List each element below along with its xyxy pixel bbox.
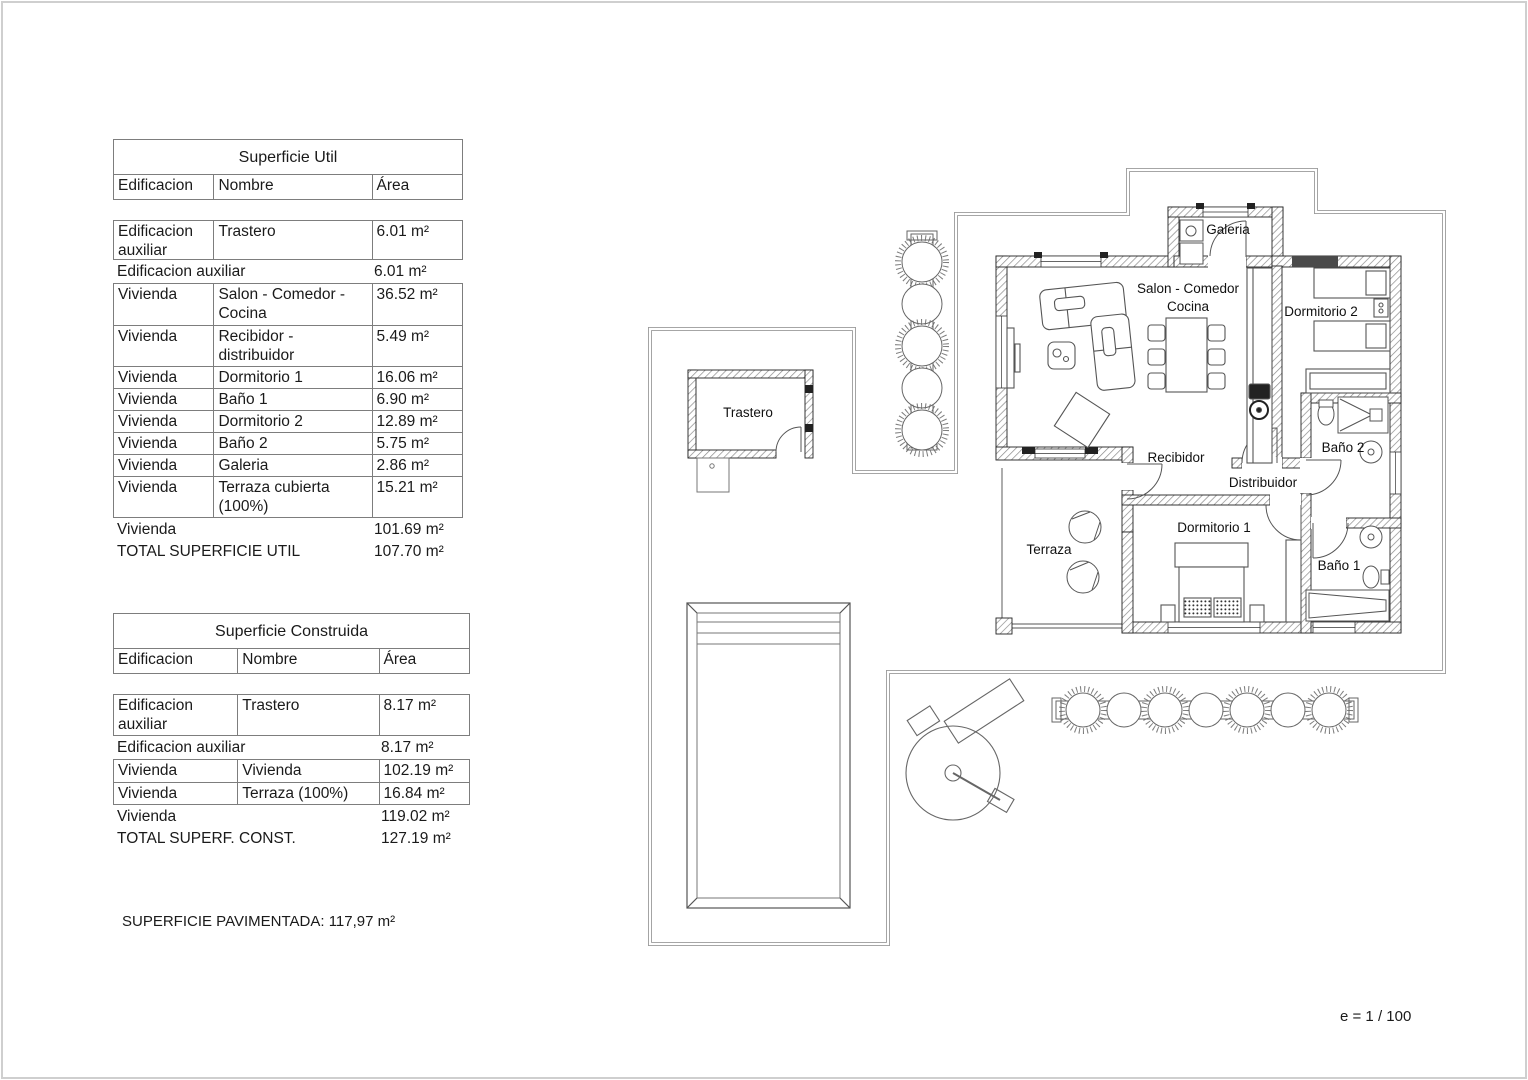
dark-window (1292, 256, 1338, 267)
tree-icon (898, 406, 946, 454)
terraza-pillar (996, 618, 1012, 634)
floor-plan: Galeria Salon - Comedor Cocina Dormitori… (0, 0, 1528, 1080)
terraza-chairs (1067, 511, 1101, 593)
room-label-distribuidor: Distribuidor (1229, 475, 1298, 490)
tree-icon (1144, 689, 1186, 731)
tree-icon (1271, 693, 1305, 727)
tree-icon (898, 238, 946, 286)
room-label-trastero: Trastero (723, 405, 773, 420)
room-label-salon-line1: Salon - Comedor (1137, 281, 1240, 296)
salon-furniture (1007, 268, 1272, 463)
trastero-building (688, 370, 813, 492)
tree-icon (902, 284, 942, 324)
room-label-galeria: Galeria (1206, 222, 1250, 237)
room-label-recibidor: Recibidor (1147, 450, 1205, 465)
room-label-dormitorio1: Dormitorio 1 (1177, 520, 1251, 535)
room-label-terraza: Terraza (1026, 542, 1072, 557)
galeria-appliances (1180, 220, 1203, 264)
room-label-salon-line2: Cocina (1167, 299, 1210, 314)
dormitorio1-furniture (1161, 540, 1301, 622)
room-label-dormitorio2: Dormitorio 2 (1284, 304, 1358, 319)
drawing-sheet: Superficie Util Edificacion Nombre Área … (0, 0, 1528, 1080)
tree-icon (1107, 693, 1141, 727)
tree-icon (898, 322, 946, 370)
tree-row-vertical (898, 231, 946, 454)
swimming-pool (687, 603, 850, 908)
tree-row-horizontal (1052, 689, 1358, 731)
tree-icon (1189, 693, 1223, 727)
garden-furniture (906, 679, 1024, 820)
bano1-fixtures (1306, 526, 1389, 621)
tree-icon (1062, 689, 1104, 731)
tree-icon (1226, 689, 1268, 731)
room-label-bano2: Baño 2 (1322, 440, 1365, 455)
tree-icon (902, 368, 942, 408)
tree-icon (1308, 689, 1350, 731)
dormitorio2-furniture (1306, 268, 1390, 393)
room-label-bano1: Baño 1 (1318, 558, 1361, 573)
